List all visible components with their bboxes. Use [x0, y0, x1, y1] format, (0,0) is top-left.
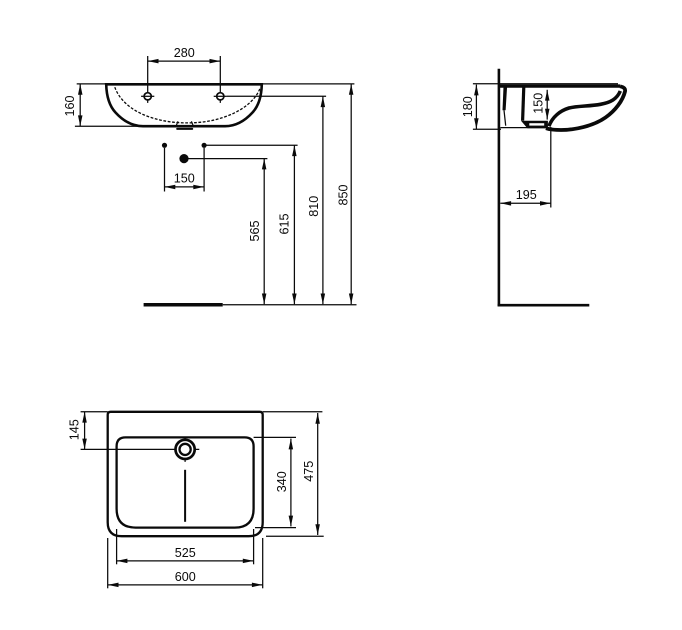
- svg-text:600: 600: [175, 570, 196, 584]
- svg-text:280: 280: [174, 46, 195, 60]
- svg-text:180: 180: [461, 96, 475, 117]
- svg-text:615: 615: [278, 213, 292, 234]
- svg-text:145: 145: [68, 419, 82, 440]
- svg-text:340: 340: [275, 471, 289, 492]
- svg-text:150: 150: [532, 93, 546, 114]
- svg-text:850: 850: [336, 184, 350, 205]
- svg-text:525: 525: [175, 546, 196, 560]
- svg-text:195: 195: [516, 188, 537, 202]
- svg-text:810: 810: [307, 196, 321, 217]
- svg-text:565: 565: [248, 220, 262, 241]
- svg-text:475: 475: [302, 461, 316, 482]
- svg-text:160: 160: [63, 95, 77, 116]
- svg-text:150: 150: [174, 171, 195, 185]
